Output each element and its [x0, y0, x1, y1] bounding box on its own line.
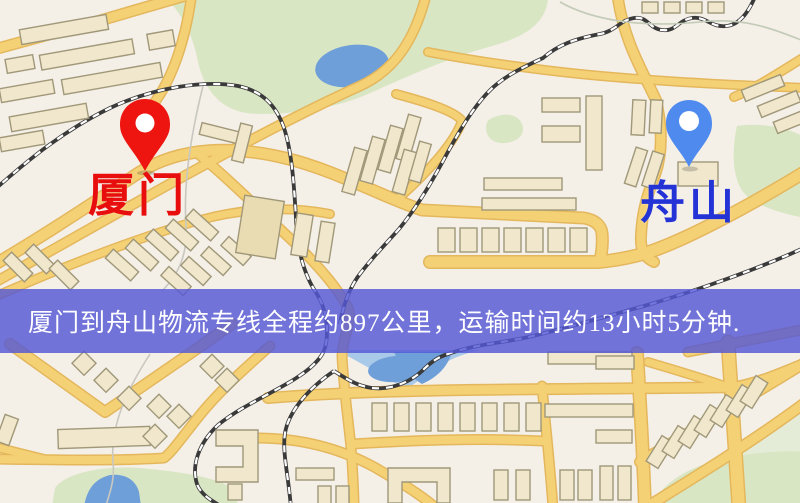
- route-info-text: 厦门到舟山物流专线全程约897公里，运输时间约13小时5分钟.: [28, 303, 740, 339]
- destination-label: 舟山: [640, 180, 738, 225]
- route-info-banner: 厦门到舟山物流专线全程约897公里，运输时间约13小时5分钟.: [0, 289, 800, 353]
- origin-label: 厦门: [88, 172, 188, 218]
- map-view: 厦门到舟山物流专线全程约897公里，运输时间约13小时5分钟. 厦门 舟山: [0, 0, 800, 503]
- origin-pin-hole: [136, 114, 155, 133]
- map-canvas: [0, 0, 800, 503]
- destination-pin-hole: [679, 111, 699, 131]
